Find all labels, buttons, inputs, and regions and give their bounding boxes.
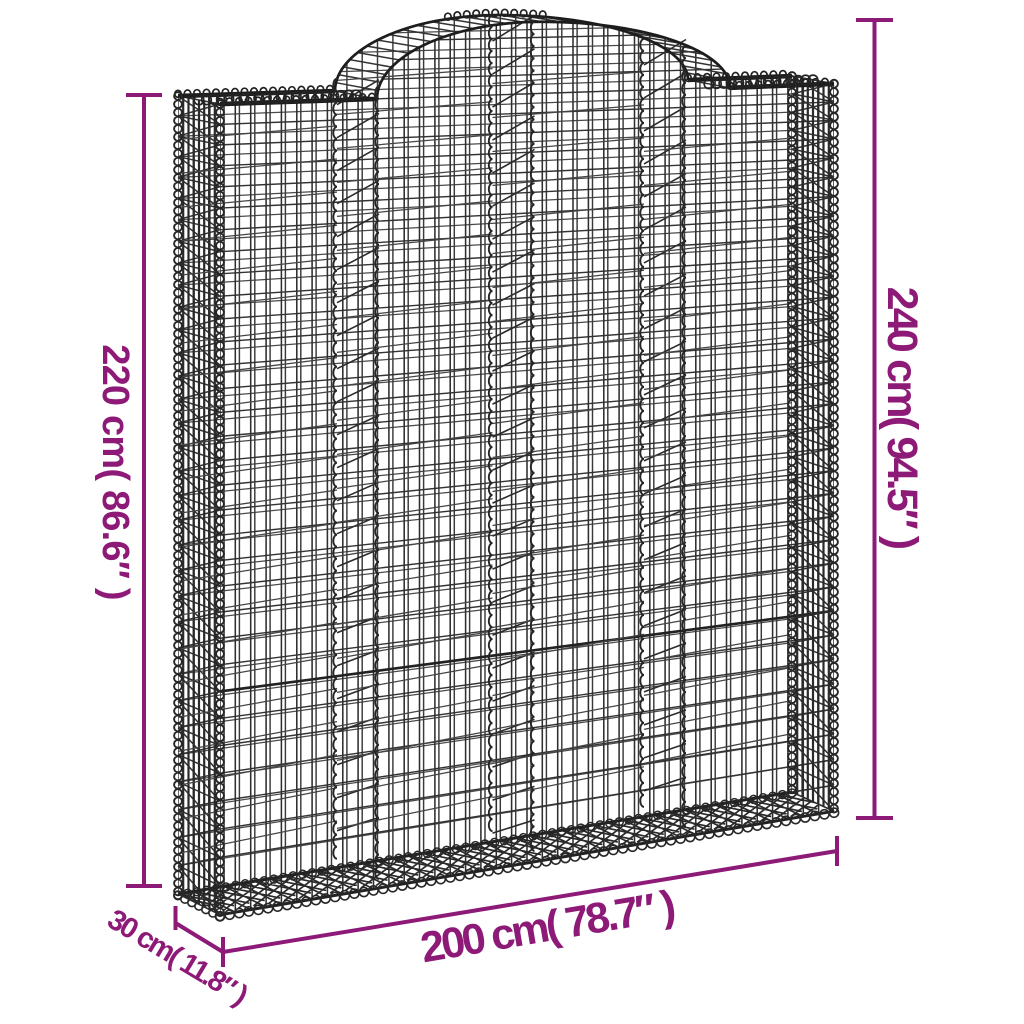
- svg-text:220 cm( 86.6″ ): 220 cm( 86.6″ ): [94, 344, 136, 599]
- svg-text:240 cm( 94.5″ ): 240 cm( 94.5″ ): [878, 287, 926, 549]
